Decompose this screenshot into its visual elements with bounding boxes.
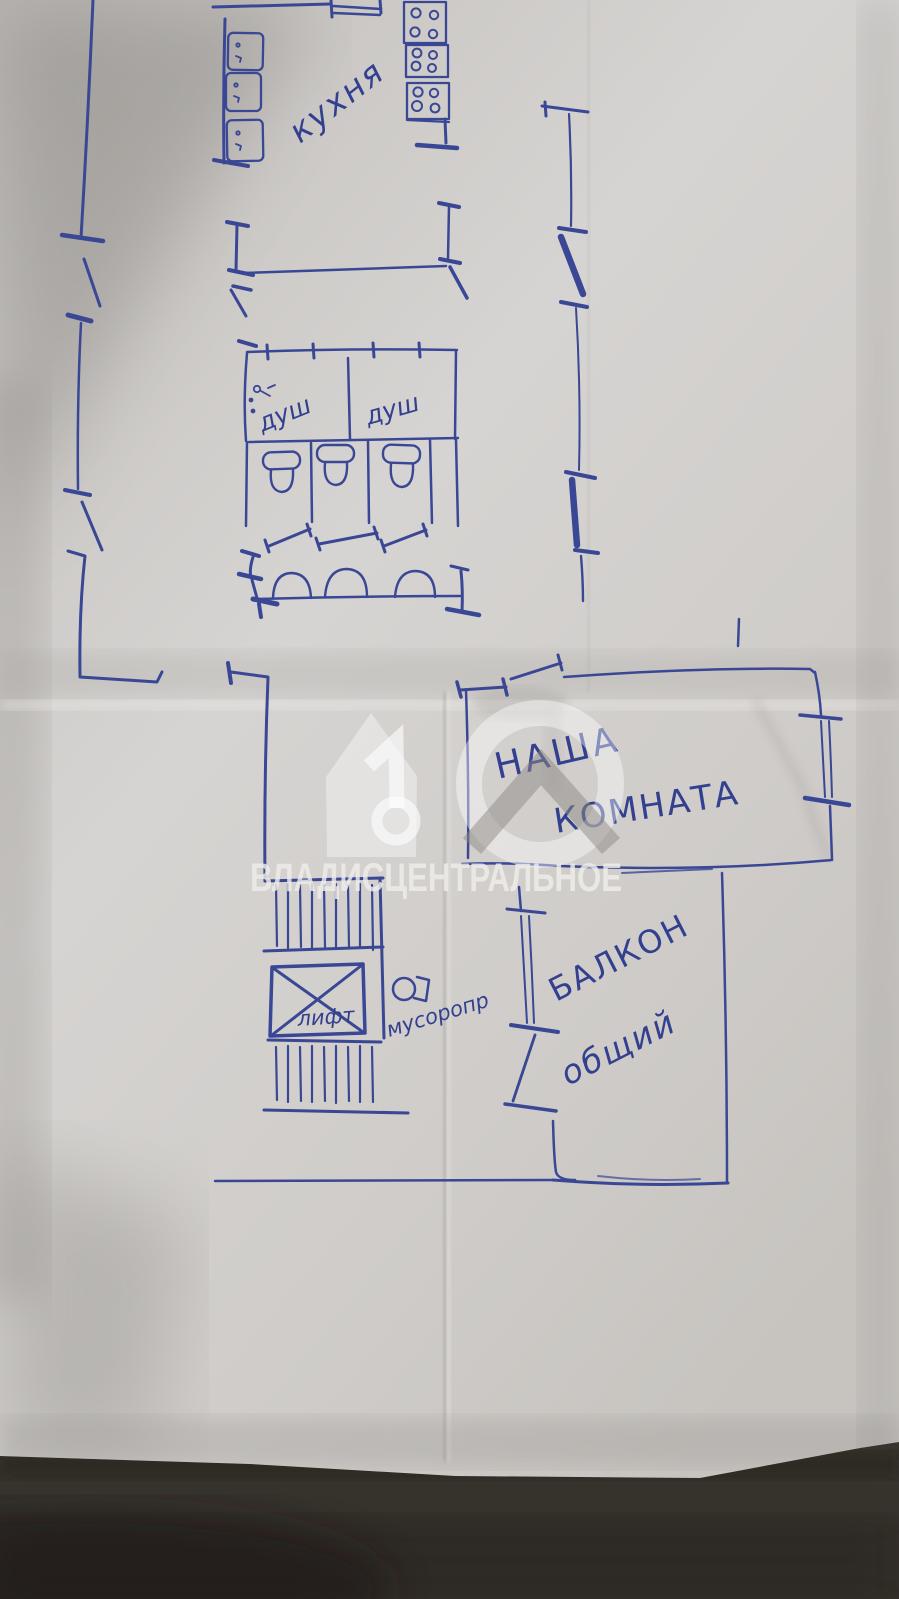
floor-plan-svg: кухня душ душ НАША КОМНАТА БАЛКОН общий …: [0, 0, 899, 1599]
label-lift: лифт: [296, 1003, 357, 1031]
floor-plan-photo: кухня душ душ НАША КОМНАТА БАЛКОН общий …: [0, 0, 899, 1599]
watermark-text: ВЛАДИСЦЕНТРАЛЬНОЕ: [250, 856, 622, 900]
